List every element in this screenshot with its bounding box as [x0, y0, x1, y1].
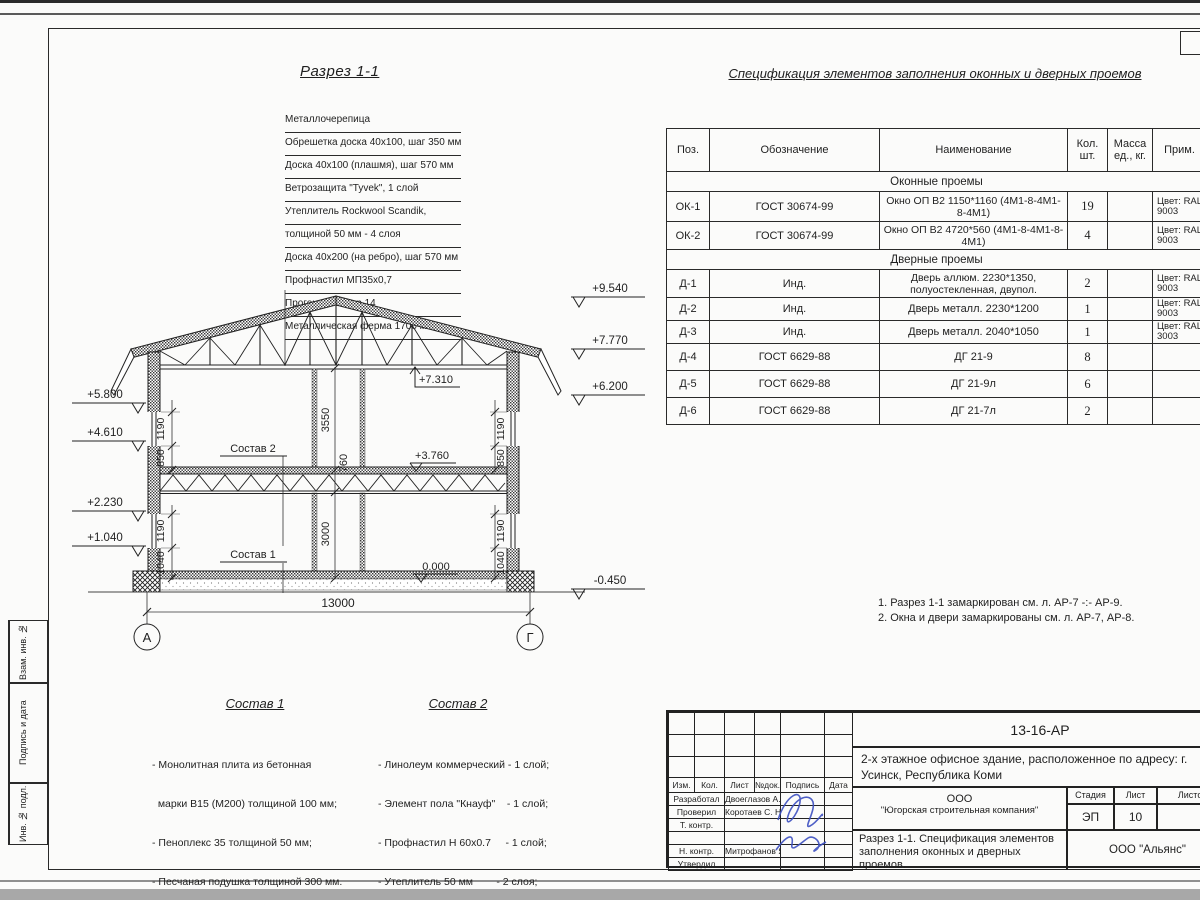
- document-number: 13-16-АР: [852, 712, 1200, 747]
- walls: [147, 352, 521, 578]
- dim-window-height: 1190: [155, 418, 167, 441]
- list-item: - Пеноплекс 35 толщиной 50 мм;: [152, 837, 342, 850]
- table-row: Д-4 ГОСТ 6629-88 ДГ 21-9 8: [667, 344, 1200, 371]
- col-header: Масса ед., кг.: [1108, 129, 1153, 172]
- col-header: Кол.: [695, 778, 725, 793]
- signature-stroke: [776, 837, 826, 851]
- company-name-line: ООО: [853, 793, 1066, 805]
- building-section-drawing: Состав 2 Состав 1 3550 760 3000 1190 850…: [60, 260, 660, 670]
- col-header: Поз.: [667, 129, 710, 172]
- cell-qty: 1: [1068, 321, 1108, 344]
- cell-doc: ГОСТ 6629-88: [710, 344, 880, 371]
- elevation-label: +9.540: [592, 283, 628, 295]
- col-header: Лист: [725, 778, 755, 793]
- leader-lines: [283, 290, 285, 593]
- sidebar-label: Взам. инв. №: [9, 621, 36, 682]
- cell-note: Цвет: RAL 3003: [1153, 321, 1200, 344]
- col-header: Наименование: [880, 129, 1068, 172]
- window-opening: [506, 514, 521, 548]
- handwritten-signatures: [772, 786, 862, 876]
- sheets-label: Листов: [1157, 787, 1200, 804]
- title-block: Изм. Кол. Лист №док. Подпись Дата Разраб…: [666, 710, 1200, 868]
- corner-stamp-box: [1180, 31, 1200, 55]
- elevation-label: 0.000: [422, 561, 450, 573]
- sidebar-box-vzam: Взам. инв. №: [8, 620, 48, 683]
- cell-qty: 19: [1068, 192, 1108, 222]
- cell-doc: Инд.: [710, 321, 880, 344]
- sostav2-label: Состав 2: [230, 443, 276, 455]
- cell-name: Дверь металл. 2040*1050: [880, 321, 1068, 344]
- elevation-label: +2.230: [87, 497, 123, 509]
- cell-qty: 4: [1068, 222, 1108, 250]
- cell-qty: 1: [1068, 298, 1108, 321]
- section-title: Дверные проемы: [667, 250, 1200, 270]
- elevation-arrow-icon: [573, 589, 585, 599]
- scan-paper-edge: [0, 13, 1200, 15]
- drawing-sheet: Взам. инв. № Подпись и дата Инв. № подл.…: [0, 0, 1200, 900]
- note-line: 2. Окна и двери замаркированы см. л. АР-…: [878, 611, 1134, 626]
- notes-block: 1. Разрез 1-1 замаркирован см. л. АР-7 -…: [878, 596, 1134, 626]
- cell-qty: 8: [1068, 344, 1108, 371]
- elevation-label: +3.760: [415, 450, 449, 462]
- scan-edge-top: [0, 0, 1200, 3]
- note-line: 1. Разрез 1-1 замаркирован см. л. АР-7 -…: [878, 596, 1134, 611]
- cell-name: Окно ОП В2 4720*560 (4М1-8-4М1-8-4М1): [880, 222, 1068, 250]
- list-item: - Утеплитель 50 мм - 2 слоя;: [378, 876, 549, 889]
- cell-note: Цвет: RAL 9003: [1153, 222, 1200, 250]
- elevation-label: -0.450: [594, 575, 627, 587]
- list-item: - Монолитная плита из бетонная: [152, 759, 342, 772]
- cell-mass: [1108, 398, 1153, 425]
- dim-sill-2f: 850: [495, 449, 507, 467]
- dim-floor1-height: 3000: [320, 522, 332, 546]
- dim-window-height: 1190: [495, 520, 507, 543]
- elevation-label: +7.770: [592, 335, 628, 347]
- design-company: ООО "Югорская строительная компания": [852, 787, 1067, 830]
- elevation-arrow-icon: [132, 441, 144, 451]
- sostav-leader-labels: Состав 2 Состав 1: [220, 443, 287, 562]
- roof-layer-item: толщиной 50 мм - 4 слоя: [285, 225, 461, 248]
- cell-pos: Д-6: [667, 398, 710, 425]
- axis-letter-left: А: [143, 630, 152, 645]
- axis-letter-right: Г: [526, 630, 533, 645]
- sheets-total: [1157, 804, 1200, 830]
- table-row: Д-1 Инд. Дверь аллюм. 2230*1350, полуост…: [667, 270, 1200, 298]
- cell-qty: 2: [1068, 398, 1108, 425]
- elevation-marks-left: +5.800 +4.610 +2.230 +1.040: [72, 389, 146, 556]
- foundation-right: [507, 571, 534, 592]
- table-row: Д-3 Инд. Дверь металл. 2040*1050 1 Цвет:…: [667, 321, 1200, 344]
- col-header: Кол. шт.: [1068, 129, 1108, 172]
- sostav2-heading: Состав 2: [398, 696, 518, 711]
- roof-layer-item: Ветрозащита "Tyvek", 1 слой: [285, 179, 461, 202]
- cell-name: Окно ОП В2 1150*1160 (4М1-8-4М1-8-4М1): [880, 192, 1068, 222]
- elevation-label: +5.800: [87, 389, 123, 401]
- sidebar-box-podpis: Подпись и дата: [8, 683, 48, 783]
- cell-mass: [1108, 222, 1153, 250]
- col-header: Прим.: [1153, 129, 1200, 172]
- elevation-arrow-icon: [132, 403, 144, 413]
- sostav1-label: Состав 1: [230, 549, 276, 561]
- cell-doc: Инд.: [710, 270, 880, 298]
- table-row: Д-5 ГОСТ 6629-88 ДГ 21-9л 6: [667, 371, 1200, 398]
- table-row: Д-2 Инд. Дверь металл. 2230*1200 1 Цвет:…: [667, 298, 1200, 321]
- roof-layer-item: Обрешетка доска 40х100, шаг 350 мм: [285, 133, 461, 156]
- cell-name: ДГ 21-9л: [880, 371, 1068, 398]
- cell-pos: ОК-1: [667, 192, 710, 222]
- cell-note: Цвет: RAL 9003: [1153, 298, 1200, 321]
- list-item: - Линолеум коммерческий - 1 слой;: [378, 759, 549, 772]
- eave-board-right: [538, 349, 561, 395]
- sostav1-list: - Монолитная плита из бетонная марки В15…: [152, 733, 342, 900]
- cell-name: Дверь аллюм. 2230*1350, полуостекленная,…: [880, 270, 1068, 298]
- table-row: ОК-2 ГОСТ 30674-99 Окно ОП В2 4720*560 (…: [667, 222, 1200, 250]
- section-view-title: Разрез 1-1: [300, 63, 500, 80]
- stage-label: Стадия: [1067, 787, 1114, 804]
- section-row: Дверные проемы: [667, 250, 1200, 270]
- roof-layer-item: Доска 40х100 (плашмя), шаг 570 мм: [285, 156, 461, 179]
- list-item: - Элемент пола "Кнауф" - 1 слой;: [378, 798, 549, 811]
- spec-table: Поз. Обозначение Наименование Кол. шт. М…: [666, 128, 1200, 425]
- dim-sill-1f: 1040: [155, 551, 167, 575]
- section-title: Оконные проемы: [667, 172, 1200, 192]
- cell-pos: Д-3: [667, 321, 710, 344]
- cell-doc: ГОСТ 6629-88: [710, 371, 880, 398]
- elevation-label: +6.200: [592, 381, 628, 393]
- cell-doc: ГОСТ 6629-88: [710, 398, 880, 425]
- sostav1-heading: Состав 1: [195, 696, 315, 711]
- sheet-number: 10: [1114, 804, 1157, 830]
- elevation-marks-right: +9.540 +7.770 +6.200 -0.450: [571, 283, 645, 599]
- company-name-line: "Югорская строительная компания": [853, 805, 1066, 816]
- dim-sill-2f: 850: [155, 449, 167, 467]
- list-item: - Песчаная подушка толщиной 300 мм.: [152, 876, 342, 889]
- cell-pos: Д-5: [667, 371, 710, 398]
- dim-floor-package: 760: [338, 454, 350, 472]
- cell-mass: [1108, 371, 1153, 398]
- cell-pos: Д-1: [667, 270, 710, 298]
- spec-table-title: Спецификация элементов заполнения оконны…: [670, 66, 1200, 81]
- sostav2-list: - Линолеум коммерческий - 1 слой; - Элем…: [378, 733, 549, 900]
- cell-mass: [1108, 270, 1153, 298]
- cell-doc: ГОСТ 30674-99: [710, 222, 880, 250]
- contractor-name: ООО "Альянс": [1067, 830, 1200, 870]
- sidebar-label: Инв. № подл.: [9, 784, 36, 844]
- cell-doc: ГОСТ 30674-99: [710, 192, 880, 222]
- cell-name: ДГ 21-7л: [880, 398, 1068, 425]
- cell-pos: Д-4: [667, 344, 710, 371]
- stage-value: ЭП: [1067, 804, 1114, 830]
- cell-name: Дверь металл. 2230*1200: [880, 298, 1068, 321]
- dim-window-height: 1190: [495, 418, 507, 441]
- elevation-label: +1.040: [87, 532, 123, 544]
- cell-mass: [1108, 321, 1153, 344]
- elevation-arrow-icon: [573, 297, 585, 307]
- window-opening: [506, 412, 521, 446]
- dim-total-width: 13000: [321, 596, 355, 610]
- project-name: 2-х этажное офисное здание, расположенно…: [852, 747, 1200, 787]
- cell-mass: [1108, 298, 1153, 321]
- dim-floor2-height: 3550: [320, 408, 332, 432]
- cell-qty: 2: [1068, 270, 1108, 298]
- cell-note: [1153, 398, 1200, 425]
- width-dimension: 13000 А Г: [134, 592, 543, 650]
- elevation-arrow-icon: [573, 349, 585, 359]
- cell-name: ДГ 21-9: [880, 344, 1068, 371]
- dim-sill-1f: 1040: [495, 551, 507, 575]
- elevation-arrow-icon: [132, 546, 144, 556]
- dim-window-height: 1190: [155, 520, 167, 543]
- cell-mass: [1108, 344, 1153, 371]
- cell-note: [1153, 371, 1200, 398]
- elevation-arrow-icon: [573, 395, 585, 405]
- elevation-label: +4.610: [87, 427, 123, 439]
- cell-pos: ОК-2: [667, 222, 710, 250]
- spec-header-row: Поз. Обозначение Наименование Кол. шт. М…: [667, 129, 1200, 172]
- section-row: Оконные проемы: [667, 172, 1200, 192]
- col-header: Обозначение: [710, 129, 880, 172]
- cell-pos: Д-2: [667, 298, 710, 321]
- cell-note: [1153, 344, 1200, 371]
- elevation-label: +7.310: [419, 374, 453, 386]
- cell-note: Цвет: RAL 9003: [1153, 270, 1200, 298]
- roof-layer-item: Металлочерепица: [285, 110, 461, 133]
- sidebar-box-inv: Инв. № подл.: [8, 783, 48, 845]
- cell-mass: [1108, 192, 1153, 222]
- roof-layer-item: Утеплитель Rockwool Scandik,: [285, 202, 461, 225]
- cell-qty: 6: [1068, 371, 1108, 398]
- cell-doc: Инд.: [710, 298, 880, 321]
- cell-note: Цвет: RAL 9003: [1153, 192, 1200, 222]
- sidebar-label: Подпись и дата: [9, 684, 36, 782]
- sheet-title: Разрез 1-1. Спецификация элементов запол…: [852, 830, 1067, 870]
- sheet-label: Лист: [1114, 787, 1157, 804]
- list-item: марки В15 (М200) толщиной 100 мм;: [152, 798, 342, 811]
- signature-stroke: [778, 795, 822, 827]
- col-header: Изм.: [669, 778, 695, 793]
- table-row: Д-6 ГОСТ 6629-88 ДГ 21-7л 2: [667, 398, 1200, 425]
- elevation-arrow-icon: [132, 511, 144, 521]
- list-item: - Профнастил Н 60х0.7 - 1 слой;: [378, 837, 549, 850]
- table-row: ОК-1 ГОСТ 30674-99 Окно ОП В2 1150*1160 …: [667, 192, 1200, 222]
